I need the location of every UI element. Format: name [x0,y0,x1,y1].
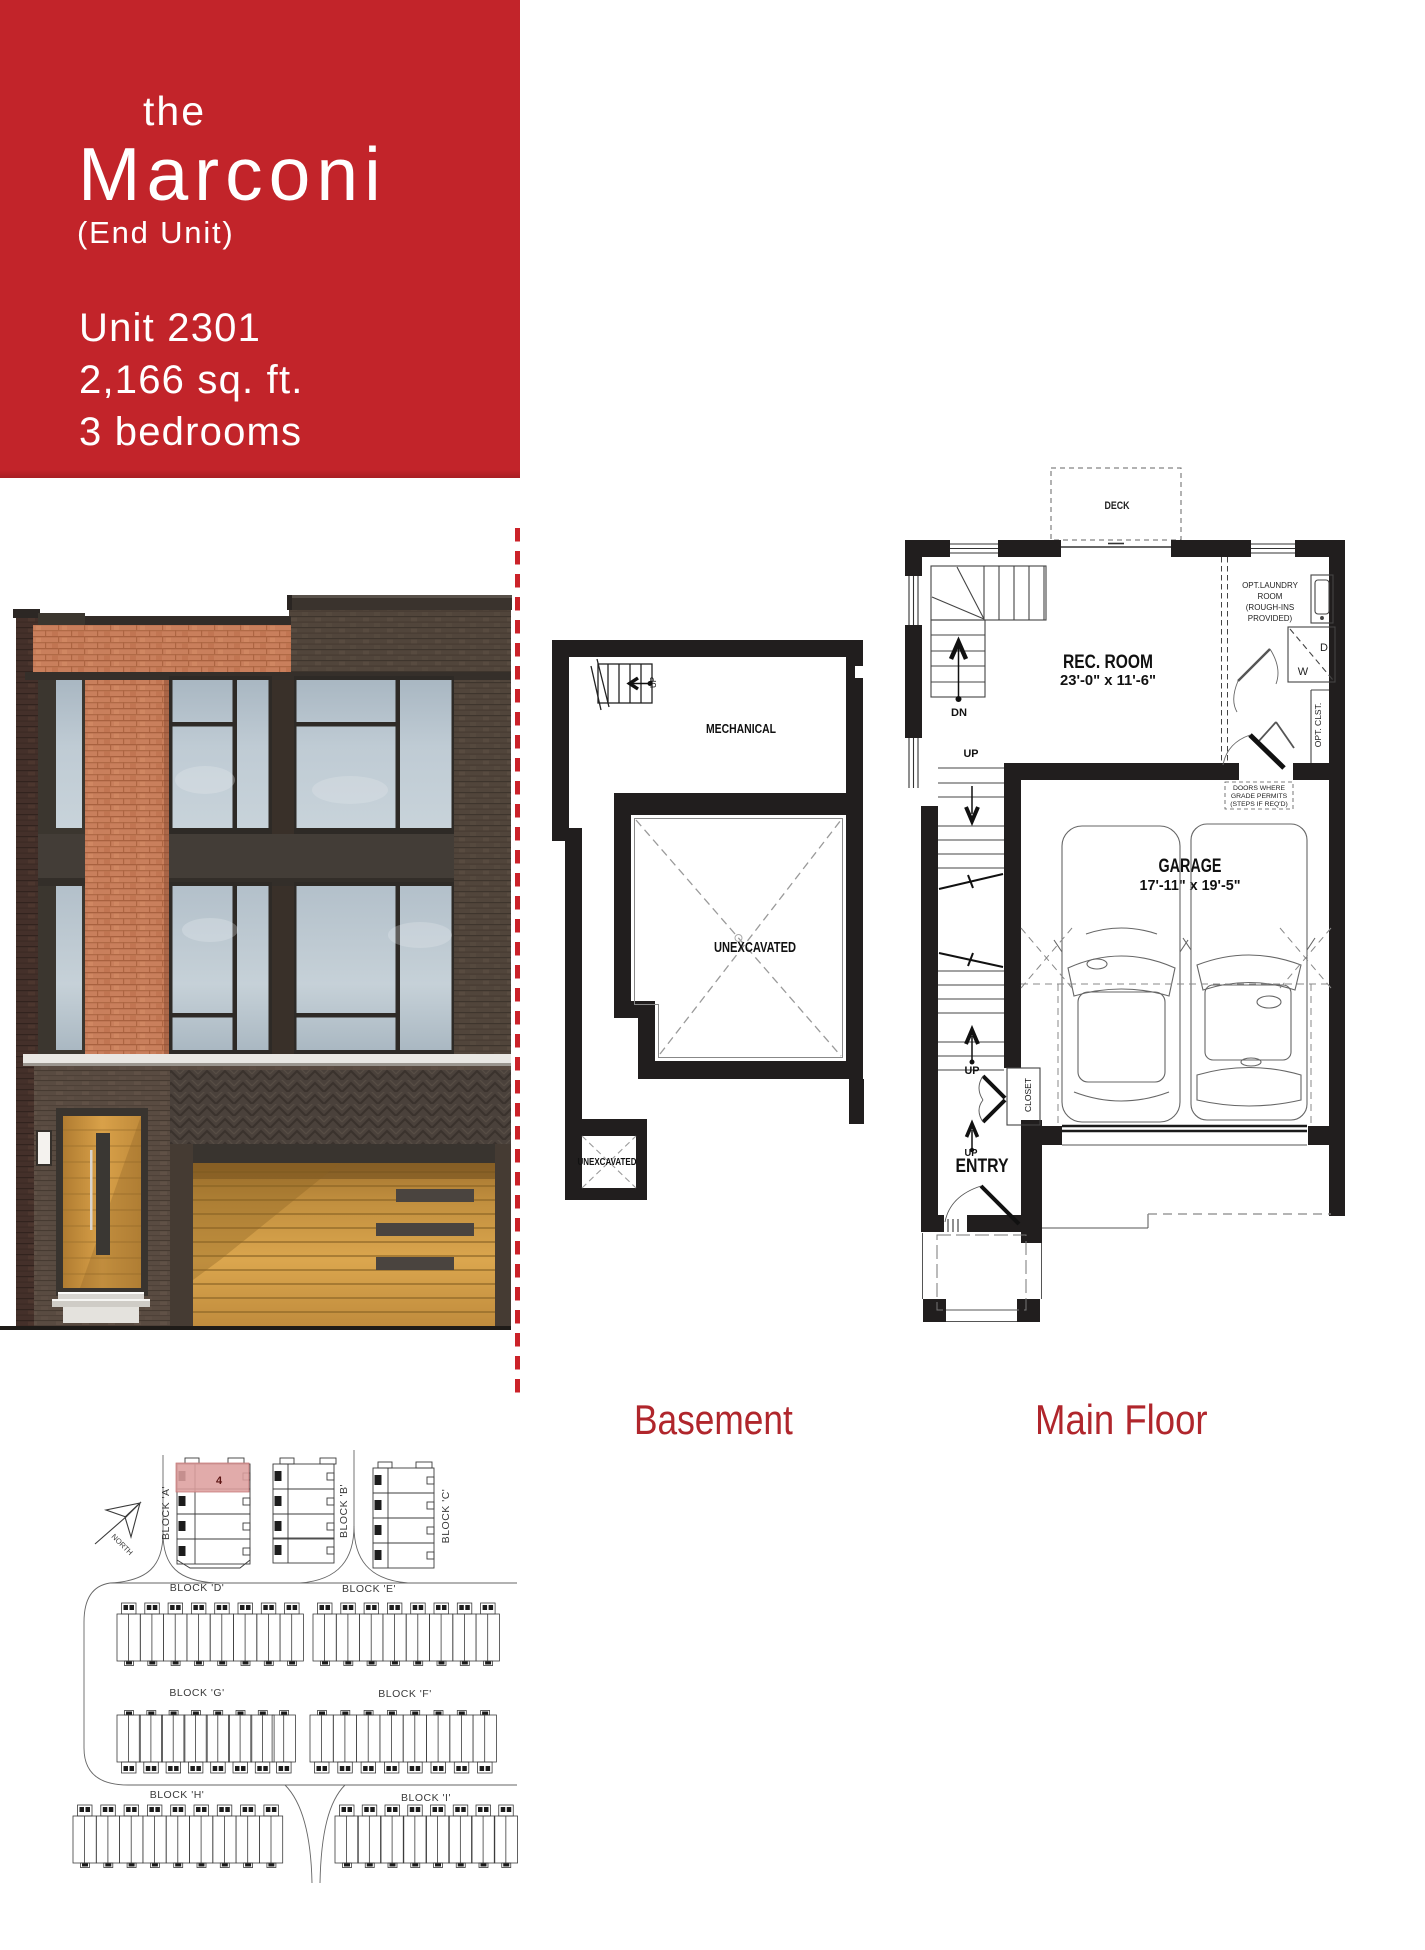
svg-text:BLOCK 'I': BLOCK 'I' [401,1792,451,1804]
svg-text:D: D [1320,642,1328,654]
svg-text:BLOCK 'H': BLOCK 'H' [150,1789,205,1801]
svg-text:(STEPS IF REQ'D): (STEPS IF REQ'D) [1230,801,1288,808]
svg-text:23'-0" x 11'-6": 23'-0" x 11'-6" [1060,672,1156,689]
svg-text:BLOCK 'E': BLOCK 'E' [342,1583,396,1595]
svg-text:4: 4 [216,1475,223,1487]
svg-text:ROOM: ROOM [1258,592,1283,601]
svg-text:UP: UP [965,1065,980,1077]
svg-text:DOORS WHERE: DOORS WHERE [1233,785,1286,792]
svg-text:UP: UP [964,748,979,760]
svg-text:REC. ROOM: REC. ROOM [1063,651,1153,673]
svg-text:BLOCK 'C': BLOCK 'C' [440,1489,452,1544]
svg-text:GRADE PERMITS: GRADE PERMITS [1231,793,1288,800]
svg-text:GARAGE: GARAGE [1159,855,1222,877]
svg-text:BLOCK 'B': BLOCK 'B' [338,1484,350,1538]
svg-text:UNEXCAVATED: UNEXCAVATED [578,1156,637,1168]
svg-text:UP: UP [649,677,658,688]
svg-text:17'-11" x 19'-5": 17'-11" x 19'-5" [1140,877,1241,894]
svg-text:UNEXCAVATED: UNEXCAVATED [714,939,796,956]
svg-text:BLOCK 'D': BLOCK 'D' [170,1582,225,1594]
svg-text:PROVIDED): PROVIDED) [1248,614,1293,623]
svg-text:(ROUGH-INS: (ROUGH-INS [1246,603,1294,612]
svg-text:DN: DN [951,707,967,719]
svg-text:MECHANICAL: MECHANICAL [706,721,776,736]
svg-text:BLOCK 'F': BLOCK 'F' [378,1688,431,1700]
svg-text:DECK: DECK [1105,500,1130,512]
svg-text:W: W [1298,666,1309,678]
svg-text:BLOCK 'A': BLOCK 'A' [160,1486,172,1540]
svg-text:ENTRY: ENTRY [956,1156,1009,1177]
svg-text:OPT.LAUNDRY: OPT.LAUNDRY [1242,581,1299,590]
svg-text:CLOSET: CLOSET [1023,1078,1033,1112]
svg-text:BLOCK 'G': BLOCK 'G' [169,1687,224,1699]
svg-text:OPT. CLST.: OPT. CLST. [1313,703,1323,747]
